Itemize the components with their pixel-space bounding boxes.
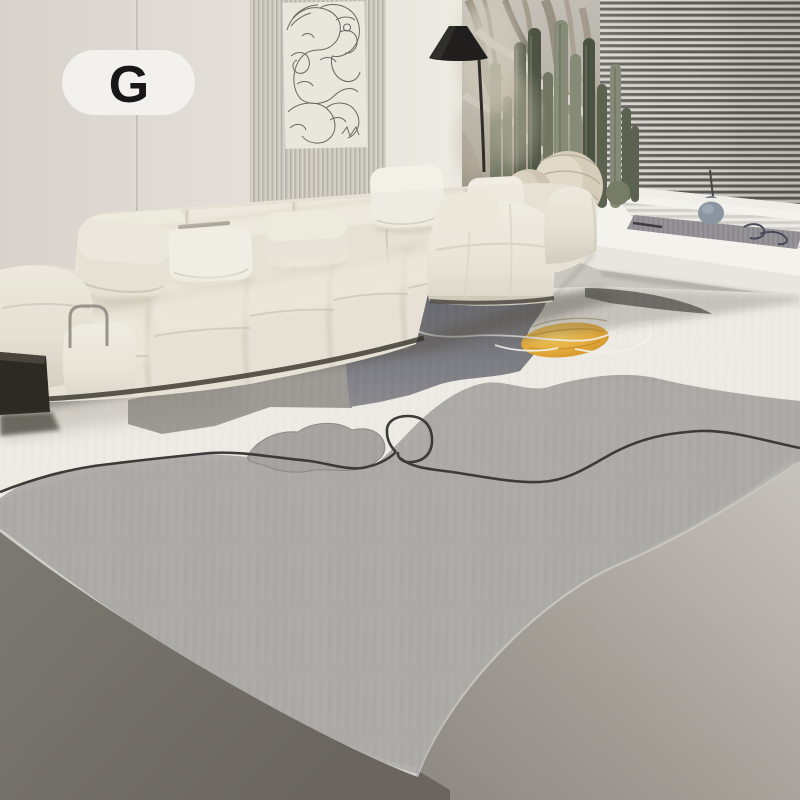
- svg-text:G: G: [109, 56, 149, 114]
